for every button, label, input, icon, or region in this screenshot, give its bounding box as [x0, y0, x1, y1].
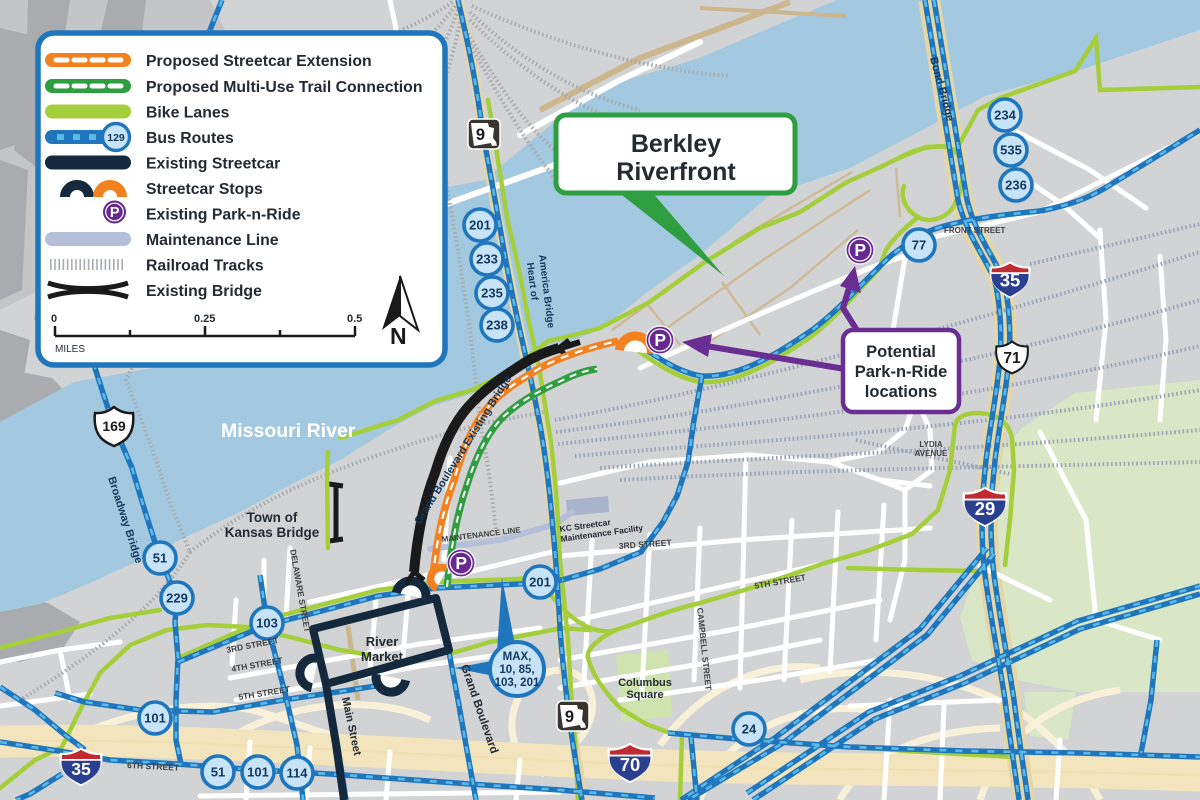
svg-text:Missouri River: Missouri River — [221, 420, 356, 442]
svg-text:locations: locations — [865, 383, 937, 401]
svg-text:101: 101 — [144, 711, 166, 726]
svg-text:169: 169 — [102, 418, 126, 434]
svg-text:MILES: MILES — [55, 344, 85, 355]
svg-text:LYDIA: LYDIA — [919, 440, 942, 449]
svg-text:114: 114 — [287, 766, 309, 781]
svg-text:201: 201 — [529, 575, 551, 590]
svg-text:51: 51 — [153, 551, 167, 566]
svg-text:Potential: Potential — [866, 343, 936, 361]
svg-text:P: P — [110, 205, 120, 221]
svg-text:0.5: 0.5 — [347, 313, 362, 325]
svg-text:235: 235 — [481, 286, 503, 301]
svg-text:Square: Square — [626, 689, 663, 701]
svg-text:AVENUE: AVENUE — [915, 449, 948, 458]
svg-text:9: 9 — [565, 708, 574, 726]
svg-text:77: 77 — [912, 238, 926, 253]
svg-text:229: 229 — [166, 591, 188, 606]
svg-text:201: 201 — [469, 218, 491, 233]
svg-text:103, 201: 103, 201 — [495, 677, 540, 689]
svg-text:71: 71 — [1003, 350, 1021, 367]
svg-text:Existing Streetcar: Existing Streetcar — [146, 156, 280, 173]
svg-text:Market: Market — [361, 649, 404, 664]
svg-text:Berkley: Berkley — [631, 130, 721, 158]
svg-text:0: 0 — [51, 313, 57, 325]
svg-text:MAX,: MAX, — [503, 651, 532, 663]
svg-text:35: 35 — [71, 759, 91, 779]
svg-text:101: 101 — [247, 765, 269, 780]
svg-text:238: 238 — [486, 318, 508, 333]
svg-text:35: 35 — [1000, 270, 1021, 291]
svg-text:Park-n-Ride: Park-n-Ride — [855, 363, 948, 381]
svg-text:70: 70 — [620, 754, 640, 775]
svg-text:Existing Park-n-Ride: Existing Park-n-Ride — [146, 207, 301, 224]
svg-text:N: N — [390, 323, 407, 349]
svg-text:Existing Bridge: Existing Bridge — [146, 283, 262, 300]
svg-text:Bike Lanes: Bike Lanes — [146, 105, 230, 122]
svg-text:535: 535 — [1000, 143, 1022, 158]
svg-text:Riverfront: Riverfront — [616, 158, 736, 186]
svg-text:FRONT STREET: FRONT STREET — [944, 226, 1005, 235]
svg-text:Proposed Streetcar Extension: Proposed Streetcar Extension — [146, 53, 372, 70]
svg-text:233: 233 — [476, 252, 498, 267]
svg-text:Streetcar Stops: Streetcar Stops — [146, 181, 263, 198]
svg-text:103: 103 — [256, 616, 278, 631]
svg-text:Bus Routes: Bus Routes — [146, 130, 234, 147]
svg-text:10, 85,: 10, 85, — [499, 664, 534, 676]
svg-text:Kansas Bridge: Kansas Bridge — [225, 525, 320, 540]
svg-text:Proposed Multi-Use Trail Conne: Proposed Multi-Use Trail Connection — [146, 79, 422, 96]
svg-text:Columbus: Columbus — [618, 677, 672, 689]
svg-text:24: 24 — [742, 722, 757, 737]
svg-text:29: 29 — [975, 498, 995, 519]
svg-text:129: 129 — [107, 132, 125, 144]
svg-text:Town of: Town of — [247, 510, 298, 525]
svg-text:236: 236 — [1005, 178, 1027, 193]
svg-text:9: 9 — [476, 126, 485, 144]
svg-text:51: 51 — [211, 765, 225, 780]
svg-text:Maintenance Line: Maintenance Line — [146, 232, 279, 249]
svg-text:River: River — [366, 634, 399, 649]
svg-text:0.25: 0.25 — [194, 313, 215, 325]
svg-text:234: 234 — [994, 108, 1016, 123]
svg-text:Railroad Tracks: Railroad Tracks — [146, 258, 264, 275]
